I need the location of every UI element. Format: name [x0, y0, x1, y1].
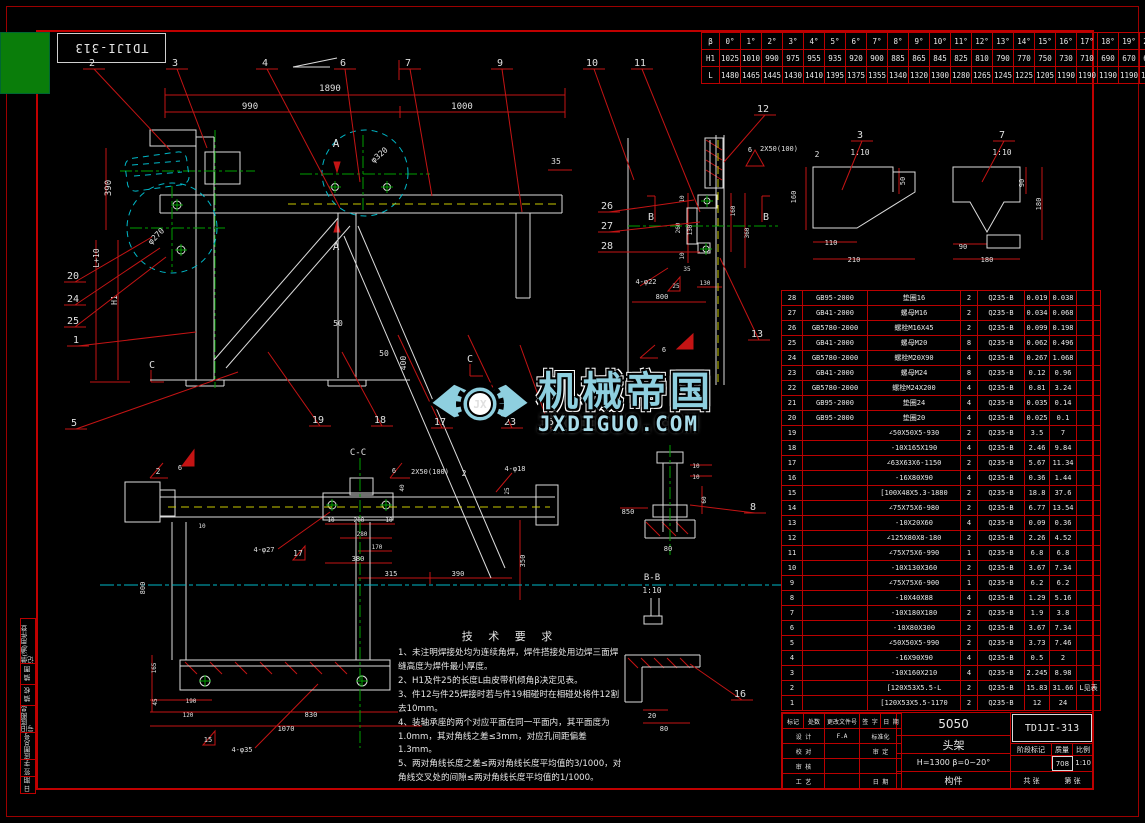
balloon-number: 17 — [434, 417, 446, 428]
parts-cell — [803, 471, 868, 486]
parts-cell: ∠75X75X6-980 — [868, 501, 961, 516]
parts-cell: 8 — [961, 336, 978, 351]
parts-cell: 2 — [961, 606, 978, 621]
parts-cell: GB5780-2000 — [803, 381, 868, 396]
dim-label: 6 — [748, 146, 752, 154]
dim-label: 10 — [692, 463, 700, 470]
balloon-2: 2 — [83, 58, 170, 150]
parts-cell — [803, 606, 868, 621]
balloon-3: 3 — [166, 58, 207, 148]
dim-label: 1:10 — [850, 148, 869, 157]
dim-label: 360 — [744, 227, 751, 238]
parts-cell: -10X20X60 — [868, 516, 961, 531]
balloon-number: 27 — [601, 221, 613, 232]
dim-label: 130 — [700, 280, 711, 287]
parts-cell: Q235-B — [978, 351, 1025, 366]
angle-cell: 920 — [846, 50, 867, 67]
parts-cell: 0.12 — [1025, 366, 1050, 381]
angle-cell: 750 — [1035, 50, 1056, 67]
dim-label: 17 — [293, 549, 303, 558]
parts-cell: 18.8 — [1025, 486, 1050, 501]
parts-cell: 17 — [782, 456, 803, 471]
parts-cell — [1077, 321, 1101, 336]
parts-list-table: 28GB95-2000垫圈162Q235-B0.0190.03827GB41-2… — [781, 290, 1101, 711]
stage-value-row: 708 1:10 — [1011, 755, 1093, 771]
parts-cell: 垫圈20 — [868, 411, 961, 426]
parts-cell: 14 — [782, 501, 803, 516]
tech-req-line: 1、未注明焊接处均为连续角焊，焊件搭接处用边焊三面焊缝高度为焊件最小厚度。 — [398, 647, 622, 675]
balloon-number: 6 — [340, 58, 346, 69]
balloon-number: 10 — [586, 58, 598, 69]
balloon-10: 10 — [583, 58, 634, 180]
parts-cell: GB5780-2000 — [803, 351, 868, 366]
parts-cell: 7.34 — [1050, 561, 1077, 576]
parts-row: 7-10X180X1802Q235-B1.93.8 — [782, 606, 1101, 621]
parts-cell — [1077, 366, 1101, 381]
parts-cell: 16 — [782, 471, 803, 486]
balloon-4: 4 — [256, 58, 340, 208]
dim-label: 800 — [139, 582, 147, 595]
angle-cell: 1265 — [972, 67, 993, 84]
parts-cell — [803, 591, 868, 606]
angle-cell: 8° — [888, 33, 909, 50]
dim-label: 400 — [399, 356, 408, 371]
sign-cell — [825, 759, 860, 774]
parts-cell — [803, 516, 868, 531]
title-right-area: TD1JI-313 阶段标记 质量 比例 708 1:10 共 张 第 张 — [1011, 713, 1093, 789]
dim-label: 1890 — [319, 84, 341, 94]
angle-cell: 4° — [804, 33, 825, 50]
parts-cell: 3.24 — [1050, 381, 1077, 396]
dim-label: 120 — [183, 712, 194, 719]
parts-cell: 4 — [961, 471, 978, 486]
dim-label: 20 — [648, 712, 656, 720]
parts-cell: GB95-2000 — [803, 396, 868, 411]
angle-cell: 1445 — [762, 67, 783, 84]
parts-cell: GB95-2000 — [803, 291, 868, 306]
balloon-11: 11 — [631, 58, 700, 212]
balloon-number: 9 — [497, 58, 503, 69]
balloon-number: 5 — [71, 418, 77, 429]
balloon-leader — [724, 115, 765, 162]
parts-cell: 螺母M20 — [868, 336, 961, 351]
dim-label: 390 — [452, 570, 465, 578]
revision-table: 标记处数更改文件号签 字日 期设 计F.A标准化校 对审 定审 核工 艺日 期 — [782, 713, 902, 789]
angle-cell: 17° — [1077, 33, 1098, 50]
parts-cell: 5.16 — [1050, 591, 1077, 606]
parts-cell: 15 — [782, 486, 803, 501]
parts-cell: 11.34 — [1050, 456, 1077, 471]
angle-cell: 1225 — [1014, 67, 1035, 84]
parts-cell: 6.8 — [1025, 546, 1050, 561]
angle-cell: 1190 — [1077, 67, 1098, 84]
parts-cell: Q235-B — [978, 576, 1025, 591]
parts-cell: 0.062 — [1025, 336, 1050, 351]
dim-label: 35 — [551, 157, 561, 166]
sign-cell: 日 期 — [860, 774, 902, 789]
parts-row: 20GB95-2000垫圈204Q235-B0.0250.1 — [782, 411, 1101, 426]
balloon-number: 12 — [757, 104, 769, 115]
parts-cell: 螺栓M16X45 — [868, 321, 961, 336]
parts-cell: 4 — [961, 591, 978, 606]
parts-cell — [803, 426, 868, 441]
angle-cell: 810 — [972, 50, 993, 67]
balloon-number: 4 — [262, 58, 268, 69]
parts-cell — [1077, 606, 1101, 621]
rev-header-cell: 处数 — [804, 714, 825, 729]
angle-row-label: L — [702, 67, 720, 84]
parts-cell: 0.267 — [1025, 351, 1050, 366]
balloon-number: 11 — [634, 58, 646, 69]
sign-cell: 工 艺 — [783, 774, 825, 789]
drawing-number: TD1JI-313 — [1012, 714, 1092, 742]
parts-cell: 2 — [961, 456, 978, 471]
angle-cell: 825 — [951, 50, 972, 67]
dim-label: B — [763, 212, 769, 223]
angle-cell: 710 — [1077, 50, 1098, 67]
parts-cell: 6 — [782, 621, 803, 636]
sign-cell — [825, 774, 860, 789]
parts-cell: Q235-B — [978, 411, 1025, 426]
parts-cell — [1077, 591, 1101, 606]
parts-cell: 0.198 — [1050, 321, 1077, 336]
balloon-number: 19 — [312, 415, 324, 426]
angle-cell: 770 — [1014, 50, 1035, 67]
angle-cell: 1010 — [741, 50, 762, 67]
parts-cell: GB41-2000 — [803, 306, 868, 321]
angle-cell: 1190 — [1119, 67, 1140, 84]
angle-cell: 1410 — [804, 67, 825, 84]
dim-label: 315 — [385, 570, 398, 578]
parts-cell — [1077, 336, 1101, 351]
parts-cell: Q235-B — [978, 591, 1025, 606]
parts-cell: 螺栓M20X90 — [868, 351, 961, 366]
balloon-number: 24 — [67, 294, 79, 305]
rev-header-cell: 标记 — [783, 714, 804, 729]
parts-cell — [803, 441, 868, 456]
dim-label: 6 — [392, 467, 396, 475]
parts-cell: Q235-B — [978, 306, 1025, 321]
angle-cell: 1190 — [1098, 67, 1119, 84]
balloon-leader — [410, 69, 432, 196]
parts-cell: 3 — [782, 666, 803, 681]
parts-cell: GB41-2000 — [803, 336, 868, 351]
angle-cell: 1° — [741, 33, 762, 50]
parts-cell: 0.81 — [1025, 381, 1050, 396]
parts-row: 6-10X80X3002Q235-B3.677.34 — [782, 621, 1101, 636]
tech-req-line: 2、H1及件25的长度L由皮带机倾角β决定见表。 — [398, 675, 622, 689]
parts-cell: 10 — [782, 561, 803, 576]
dim-label: 6 — [662, 346, 666, 354]
angle-cell: 7° — [867, 33, 888, 50]
balloon-16: 16 — [690, 664, 753, 700]
parts-cell: Q235-B — [978, 636, 1025, 651]
parts-cell — [803, 666, 868, 681]
dim-label: φ270 — [146, 226, 166, 246]
parts-cell: 13 — [782, 516, 803, 531]
angle-table-row: H110251010990975955935920900885865845825… — [702, 50, 1145, 67]
dim-label: 170 — [372, 544, 383, 551]
angle-cell: 900 — [867, 50, 888, 67]
dim-label: 4-φ35 — [231, 746, 252, 754]
tech-req-title: 技 术 要 求 — [398, 628, 622, 644]
parts-row: 22GB5780-2000螺栓M24X2004Q235-B0.813.24 — [782, 381, 1101, 396]
parts-cell: Q235-B — [978, 546, 1025, 561]
parts-cell: 1.9 — [1025, 606, 1050, 621]
dim-label: 45 — [152, 698, 159, 706]
parts-cell: 31.66 — [1050, 681, 1077, 696]
dim-label: 50 — [379, 349, 389, 358]
balloon-number: 15 — [542, 417, 554, 428]
parts-cell: 2 — [961, 321, 978, 336]
parts-row: 1[120X53X5.5-11702Q235-B1224 — [782, 696, 1101, 711]
parts-cell — [803, 531, 868, 546]
parts-cell: 0.1 — [1050, 411, 1077, 426]
parts-cell: 2 — [961, 426, 978, 441]
dim-label: 25 — [504, 487, 511, 495]
balloon-leader — [642, 69, 700, 212]
parts-cell: Q235-B — [978, 456, 1025, 471]
revision-signature-area: 标记处数更改文件号签 字日 期设 计F.A标准化校 对审 定审 核工 艺日 期 — [782, 713, 897, 789]
stage-header-row: 阶段标记 质量 比例 — [1011, 743, 1093, 755]
parts-row: 25GB41-2000螺母M208Q235-B0.0620.496 — [782, 336, 1101, 351]
sign-cell: 设 计 — [783, 729, 825, 744]
balloon-number: 18 — [374, 415, 386, 426]
parts-cell: 1 — [961, 546, 978, 561]
balloon-leader — [594, 69, 634, 180]
dim-label: 1070 — [278, 725, 295, 733]
sign-cell: 标准化 — [860, 729, 902, 744]
angle-cell: 18° — [1098, 33, 1119, 50]
dim-label: 180 — [981, 256, 994, 264]
sign-row: 设 计F.A标准化 — [783, 729, 902, 744]
angle-cell: 690 — [1098, 50, 1119, 67]
parts-cell: 0.068 — [1050, 306, 1077, 321]
parts-cell: 13.54 — [1050, 501, 1077, 516]
sign-cell: 审 定 — [860, 744, 902, 759]
parts-row: 16-16X80X904Q235-B0.361.44 — [782, 471, 1101, 486]
parts-cell — [1077, 306, 1101, 321]
tech-req-lines: 1、未注明焊接处均为连续角焊，焊件搭接处用边焊三面焊缝高度为焊件最小厚度。2、H… — [398, 647, 622, 786]
parts-cell — [1077, 651, 1101, 666]
parts-cell — [803, 561, 868, 576]
sheet-number: 第 张 — [1064, 776, 1080, 786]
parts-cell: Q235-B — [978, 426, 1025, 441]
parts-cell — [1077, 531, 1101, 546]
angle-cell: 935 — [825, 50, 846, 67]
parts-cell: 7.34 — [1050, 621, 1077, 636]
parts-cell: Q235-B — [978, 441, 1025, 456]
parts-cell: 4.52 — [1050, 531, 1077, 546]
parts-cell: Q235-B — [978, 696, 1025, 711]
parts-cell: 2 — [961, 636, 978, 651]
parts-cell — [1077, 636, 1101, 651]
dim-label: C — [149, 360, 155, 371]
parts-cell — [1077, 486, 1101, 501]
balloon-leader — [502, 69, 522, 212]
angle-table-row: L148014651445143014101395137513551340132… — [702, 67, 1145, 84]
type-label: 构件 — [897, 772, 1010, 789]
angle-cell: 1395 — [825, 67, 846, 84]
tech-req-line: 4、装轴承座的两个对应平面在同一平面内，其平面度为1.0mm，其对角线之差≤3m… — [398, 717, 622, 759]
parts-row: 14∠75X75X6-9802Q235-B6.7713.54 — [782, 501, 1101, 516]
parts-row: 21GB95-2000垫圈244Q235-B0.0350.14 — [782, 396, 1101, 411]
parts-cell: ∠63X63X6-1150 — [868, 456, 961, 471]
parts-cell — [1077, 441, 1101, 456]
parts-cell: ∠125X80X8-180 — [868, 531, 961, 546]
dim-label: 2 — [156, 467, 161, 476]
balloon-number: 16 — [734, 689, 746, 700]
parts-row: 26GB5780-2000螺栓M16X452Q235-B0.0990.198 — [782, 321, 1101, 336]
parts-cell: 4 — [961, 396, 978, 411]
sign-cell — [825, 744, 860, 759]
parts-cell: ∠50X50X5-990 — [868, 636, 961, 651]
dim-label: 200 — [354, 517, 365, 524]
dim-label: 990 — [242, 102, 258, 112]
parts-cell — [1077, 501, 1101, 516]
parts-cell: 20 — [782, 411, 803, 426]
title-center-area: 5050 头架 H=1300 β=0~20° 构件 — [897, 713, 1011, 789]
parts-cell: 2.26 — [1025, 531, 1050, 546]
parts-cell: 2 — [961, 306, 978, 321]
parts-cell: 1 — [961, 576, 978, 591]
parts-cell: 4 — [961, 411, 978, 426]
angle-cell: 865 — [909, 50, 930, 67]
balloon-leader — [690, 505, 755, 513]
parts-cell: 1 — [782, 696, 803, 711]
dim-label: 350 — [519, 555, 527, 568]
parts-cell: -16X80X90 — [868, 471, 961, 486]
rev-header-cell: 更改文件号 — [825, 714, 860, 729]
parts-cell: [100X48X5.3-1880 — [868, 486, 961, 501]
parts-cell: 螺母M24 — [868, 366, 961, 381]
angle-cell: 975 — [783, 50, 804, 67]
parts-cell: ∠75X75X6-990 — [868, 546, 961, 561]
parts-cell — [1077, 576, 1101, 591]
tech-req-line: 5、两对角线长度之差≤两对角线长度平均值的3/1000，对角线交叉处的间隙≤两对… — [398, 758, 622, 786]
dim-label: 380 — [352, 555, 365, 563]
scale-value: 1:10 — [1073, 756, 1093, 769]
parts-cell — [1077, 471, 1101, 486]
parts-cell: Q235-B — [978, 471, 1025, 486]
sign-row: 工 艺日 期 — [783, 774, 902, 789]
parts-cell: -10X160X210 — [868, 666, 961, 681]
parts-cell: Q235-B — [978, 516, 1025, 531]
parts-cell: 24 — [782, 351, 803, 366]
parts-cell: Q235-B — [978, 321, 1025, 336]
parts-cell: GB5780-2000 — [803, 321, 868, 336]
angle-cell: 1190 — [1140, 67, 1145, 84]
sheet-count-row: 共 张 第 张 — [1011, 771, 1093, 789]
angle-cell: 1280 — [951, 67, 972, 84]
balloon-number: 3 — [857, 130, 863, 141]
balloon-number: 26 — [601, 201, 613, 212]
dim-label: 35 — [683, 266, 691, 273]
parts-cell: 3.67 — [1025, 561, 1050, 576]
angle-cell: 5° — [825, 33, 846, 50]
dim-label: 165 — [151, 662, 158, 673]
balloon-number: 8 — [750, 502, 756, 513]
dim-label: 90 — [1018, 179, 1026, 187]
parts-cell: 3.73 — [1025, 636, 1050, 651]
parts-cell: 2 — [961, 501, 978, 516]
parts-cell: 螺栓M24X200 — [868, 381, 961, 396]
dim-label: 190 — [186, 698, 197, 705]
dim-label: 110 — [825, 239, 838, 247]
parts-row: 27GB41-2000螺母M162Q235-B0.0340.068 — [782, 306, 1101, 321]
parts-cell: 0.099 — [1025, 321, 1050, 336]
parts-cell: 0.36 — [1050, 516, 1077, 531]
parts-cell: GB95-2000 — [803, 411, 868, 426]
parts-cell: 0.5 — [1025, 651, 1050, 666]
parts-cell: 23 — [782, 366, 803, 381]
dim-label: 50 — [333, 319, 343, 328]
parts-row: 18-10X165X1904Q235-B2.469.84 — [782, 441, 1101, 456]
parts-cell: 4 — [782, 651, 803, 666]
parts-cell — [1077, 411, 1101, 426]
parts-cell: 18 — [782, 441, 803, 456]
angle-cell: 990 — [762, 50, 783, 67]
balloon-1: 1 — [67, 332, 196, 346]
parts-cell: 3.5 — [1025, 426, 1050, 441]
parts-cell — [1077, 666, 1101, 681]
parts-cell — [1077, 546, 1101, 561]
balloon-leader — [177, 69, 207, 148]
parts-cell: Q235-B — [978, 561, 1025, 576]
parts-cell: Q235-B — [978, 336, 1025, 351]
parts-cell: Q235-B — [978, 501, 1025, 516]
parts-row: 2[120X53X5.5-L2Q235-B15.8331.66L见表 — [782, 681, 1101, 696]
angle-cell: 1245 — [993, 67, 1014, 84]
parts-cell: 11 — [782, 546, 803, 561]
parts-cell: 7 — [782, 606, 803, 621]
sign-row: 校 对审 定 — [783, 744, 902, 759]
dim-label: A — [333, 240, 340, 253]
sign-cell: 审 核 — [783, 759, 825, 774]
angle-cell: 15° — [1035, 33, 1056, 50]
angle-cell: 1320 — [909, 67, 930, 84]
parts-cell: Q235-B — [978, 681, 1025, 696]
parts-cell: 8 — [961, 366, 978, 381]
parts-cell — [803, 456, 868, 471]
parts-cell — [803, 651, 868, 666]
parts-cell: 7.46 — [1050, 636, 1077, 651]
parts-cell — [1077, 351, 1101, 366]
balloon-9: 9 — [491, 58, 522, 212]
sign-cell: F.A — [825, 729, 860, 744]
parts-cell: 2 — [961, 681, 978, 696]
parts-cell: Q235-B — [978, 651, 1025, 666]
angle-cell: 645 — [1140, 50, 1145, 67]
parts-cell: 2 — [961, 561, 978, 576]
dim-label: A — [333, 137, 340, 150]
balloon-number: 3 — [172, 58, 178, 69]
parts-cell: 4 — [961, 441, 978, 456]
angle-cell: 16° — [1056, 33, 1077, 50]
parts-cell: 0.038 — [1050, 291, 1077, 306]
angle-cell: 11° — [951, 33, 972, 50]
angle-cell: 1430 — [783, 67, 804, 84]
angle-table-row: β0°1°2°3°4°5°6°7°8°9°10°11°12°13°14°15°1… — [702, 33, 1145, 50]
angle-cell: 10° — [930, 33, 951, 50]
parts-row: 23GB41-2000螺母M248Q235-B0.120.96 — [782, 366, 1101, 381]
angle-cell: 845 — [930, 50, 951, 67]
dim-label: 10 — [679, 252, 686, 260]
parts-cell: 27 — [782, 306, 803, 321]
dim-label: 80 — [660, 725, 668, 733]
balloon-number: 7 — [405, 58, 411, 69]
parts-cell: Q235-B — [978, 396, 1025, 411]
